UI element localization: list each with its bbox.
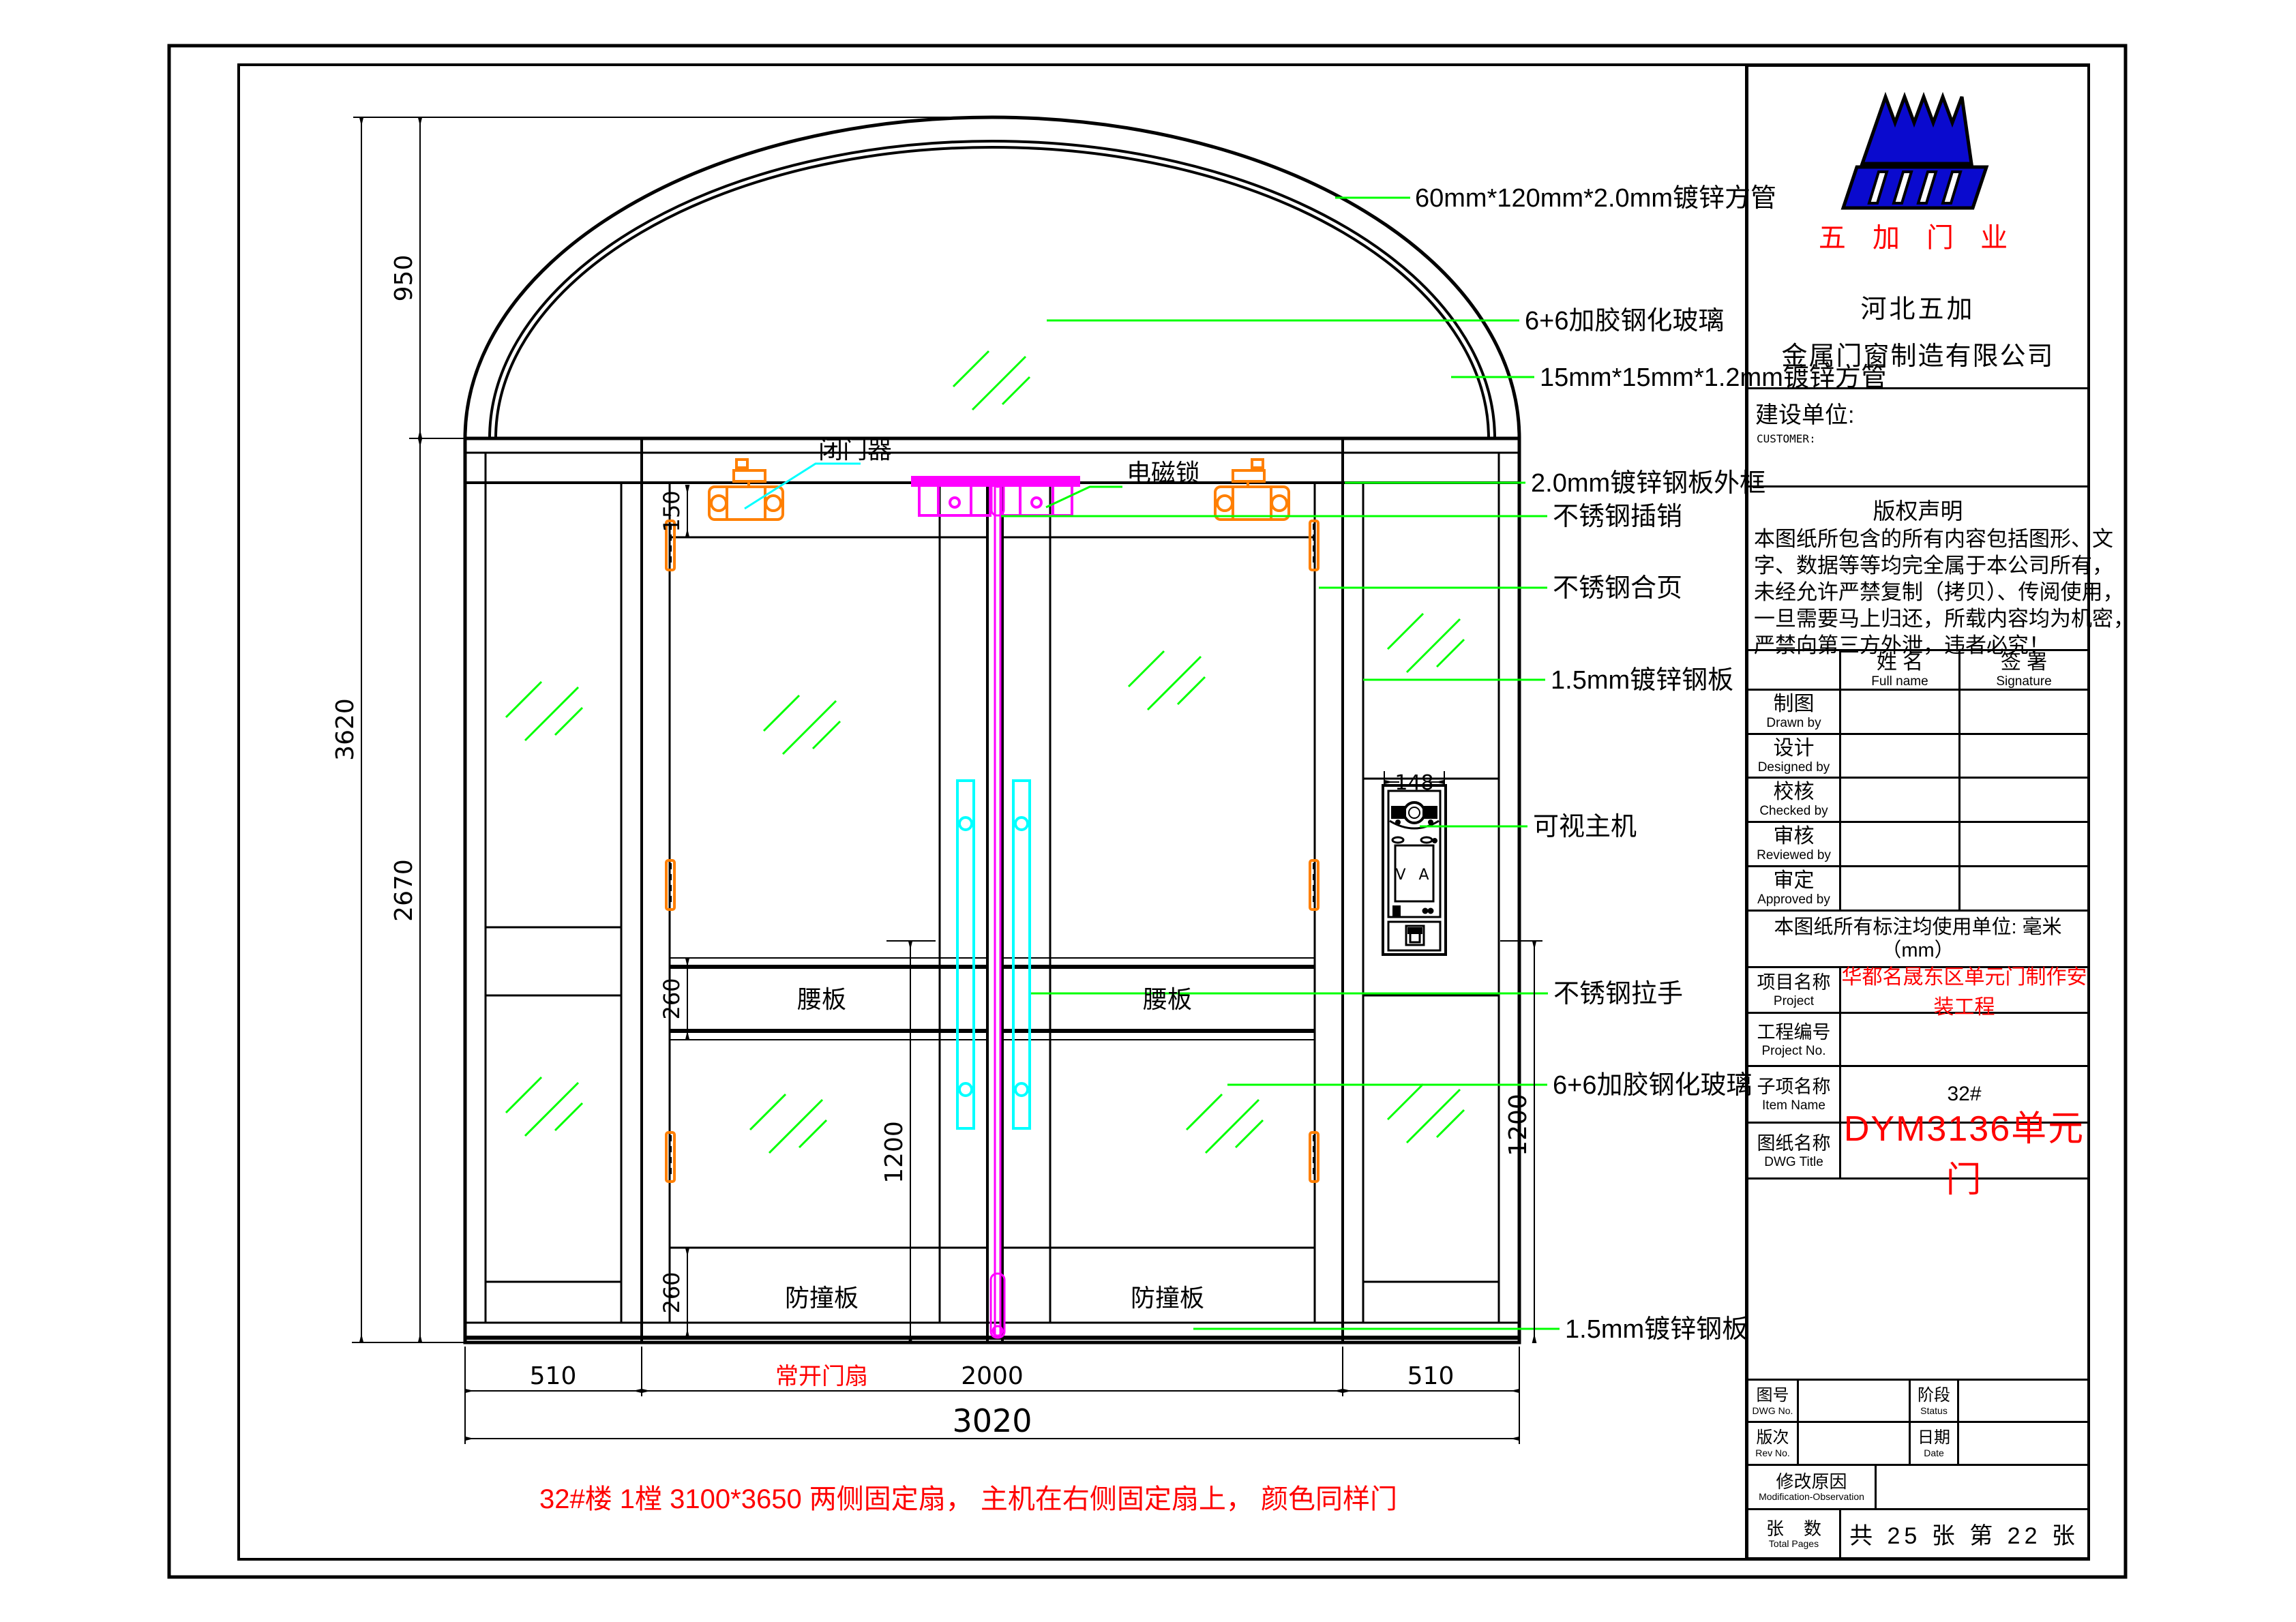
- company-logo: [1830, 82, 2007, 211]
- sign-row-label: 制图 Drawn by: [1746, 691, 1841, 735]
- intercom-screen-label: V A: [1395, 867, 1433, 884]
- project-en: Project: [1748, 994, 1839, 1009]
- callout-label: 不锈钢拉手: [1553, 980, 1683, 1008]
- sign-row-name: [1841, 823, 1960, 867]
- row-cn: 审核: [1748, 825, 1839, 848]
- sign-row-signature: [1960, 779, 2089, 823]
- sig-header-en: Signature: [1960, 674, 2087, 689]
- hinges: [666, 521, 1318, 1182]
- project-no-en: Project No.: [1748, 1044, 1839, 1059]
- callout-label: 60mm*120mm*2.0mm镀锌方管: [1415, 184, 1776, 213]
- waist-panel-label: 腰板: [797, 985, 846, 1013]
- dwg-no-en: DWG No.: [1748, 1405, 1797, 1416]
- project-no-label-cell: 工程编号 Project No.: [1746, 1014, 1841, 1067]
- pull-handles: [957, 781, 1030, 1128]
- sign-row-label: 审核 Reviewed by: [1746, 823, 1841, 867]
- callout-labels: 60mm*120mm*2.0mm镀锌方管 6+6加胶钢化玻璃 15mm*15mm…: [818, 184, 1887, 1344]
- project-cn: 项目名称: [1748, 971, 1839, 994]
- sig-header-cn: 签 署: [1960, 651, 2087, 674]
- date-cn: 日期: [1911, 1428, 1957, 1447]
- modification-value-cell: [1877, 1466, 2089, 1510]
- copyright-cell: 版权声明 本图纸所包含的所有内容包括图形、文 字、数据等等均完全属于本公司所有，…: [1746, 487, 2089, 651]
- status-label-cell: 阶段 Status: [1911, 1381, 1959, 1423]
- row-en: Designed by: [1748, 760, 1839, 775]
- door-leaf-note: 常开门扇: [775, 1364, 868, 1390]
- spacer-cell: [1746, 1180, 2089, 1381]
- dim-1200: 1200: [1504, 1094, 1532, 1156]
- pages-cn: 张 数: [1748, 1519, 1839, 1538]
- door-closer-label: 闭门器: [818, 436, 892, 464]
- copyright-line: 未经允许严禁复制（拷贝）、传阅使用，: [1748, 579, 2087, 605]
- row-en: Approved by: [1748, 892, 1839, 907]
- sign-row-label: 校核 Checked by: [1746, 779, 1841, 823]
- modification-cn: 修改原因: [1748, 1472, 1875, 1491]
- maglock-label: 电磁锁: [1127, 459, 1200, 487]
- rev-value-cell: [1799, 1423, 1911, 1466]
- date-en: Date: [1911, 1447, 1957, 1458]
- company-name-line2: 金属门窗制造有限公司: [1781, 335, 2054, 372]
- drawing-sheet: V A 60mm*120mm*2.0mm镀锌方管 6+6加胶钢化玻璃 15mm*…: [0, 0, 2296, 1622]
- sign-row-label: 设计 Designed by: [1746, 735, 1841, 779]
- status-en: Status: [1911, 1405, 1957, 1416]
- copyright-title: 版权声明: [1748, 493, 2087, 526]
- pages-value: 共 25 张 第 22 张: [1841, 1517, 2087, 1550]
- row-en: Drawn by: [1748, 716, 1839, 731]
- sign-row-name: [1841, 867, 1960, 912]
- door-closer-right: [1215, 460, 1289, 520]
- sign-header-empty: [1746, 651, 1841, 691]
- sign-row-name: [1841, 691, 1960, 735]
- dim-3020: 3020: [952, 1402, 1032, 1439]
- dwg-title-value-cell: DYM3136单元门: [1841, 1124, 2089, 1180]
- status-value-cell: [1959, 1381, 2089, 1423]
- bump-panel-label: 防撞板: [785, 1284, 859, 1312]
- dwg-no-label-cell: 图号 DWG No.: [1746, 1381, 1799, 1423]
- maglock-leader: [1046, 487, 1122, 507]
- video-intercom-unit: V A: [1383, 785, 1446, 955]
- bottom-note: 32#楼 1樘 3100*3650 两侧固定扇， 主机在右侧固定扇上， 颜色同样…: [539, 1484, 1397, 1514]
- modification-en: Modification-Observation: [1748, 1491, 1875, 1502]
- door-closer-left: [709, 460, 783, 520]
- callout-label: 不锈钢合页: [1553, 574, 1682, 603]
- row-cn: 审定: [1748, 869, 1839, 892]
- date-value-cell: [1959, 1423, 2089, 1466]
- name-header-cn: 姓 名: [1841, 651, 1958, 674]
- dim-950: 950: [390, 255, 418, 302]
- sign-row-signature: [1960, 823, 2089, 867]
- customer-label: 建设单位:: [1748, 389, 2087, 430]
- customer-cell: 建设单位: CUSTOMER:: [1746, 389, 2089, 487]
- status-cn: 阶段: [1911, 1386, 1957, 1405]
- copyright-line: 一旦需要马上归还，所载内容均为机密，: [1748, 605, 2087, 632]
- waist-panel-label: 腰板: [1143, 985, 1192, 1013]
- name-header-en: Full name: [1841, 674, 1958, 689]
- dim-148: 148: [1395, 771, 1433, 795]
- title-block: 五 加 门 业 河北五加 金属门窗制造有限公司 建设单位: CUSTOMER: …: [1746, 65, 2089, 1559]
- dim-510: 510: [1407, 1362, 1455, 1390]
- copyright-line: 本图纸所包含的所有内容包括图形、文: [1748, 526, 2087, 552]
- sign-header-signature: 签 署 Signature: [1960, 651, 2089, 691]
- modification-label-cell: 修改原因 Modification-Observation: [1746, 1466, 1877, 1510]
- company-name-line1: 河北五加: [1860, 288, 1975, 325]
- customer-sublabel: CUSTOMER:: [1748, 430, 2087, 445]
- item-label-cell: 子项名称 Item Name: [1746, 1067, 1841, 1124]
- date-label-cell: 日期 Date: [1911, 1423, 1959, 1466]
- sign-row-name: [1841, 779, 1960, 823]
- dim-260: 260: [659, 1272, 685, 1313]
- pages-label-cell: 张 数 Total Pages: [1746, 1510, 1841, 1559]
- dwg-title-en: DWG Title: [1748, 1155, 1839, 1170]
- dim-2670: 2670: [390, 859, 418, 922]
- callout-label: 2.0mm镀锌钢板外框: [1531, 469, 1765, 498]
- item-cn: 子项名称: [1748, 1075, 1839, 1098]
- dim-2000: 2000: [961, 1362, 1024, 1390]
- rev-cn: 版次: [1748, 1428, 1797, 1447]
- sign-row-signature: [1960, 691, 2089, 735]
- units-note: 本图纸所有标注均使用单位: 毫米（mm）: [1748, 916, 2087, 962]
- callout-label: 1.5mm镀锌钢板: [1551, 666, 1733, 695]
- bump-panel-label: 防撞板: [1131, 1284, 1204, 1312]
- project-name-value: 华都名晟东区单元门制作安装工程: [1841, 960, 2087, 1020]
- dim-260: 260: [659, 978, 685, 1019]
- callout-leaders: [1001, 198, 1560, 1329]
- sign-header-name: 姓 名 Full name: [1841, 651, 1960, 691]
- project-label-cell: 项目名称 Project: [1746, 968, 1841, 1014]
- pages-value-cell: 共 25 张 第 22 张: [1841, 1510, 2089, 1559]
- row-cn: 设计: [1748, 737, 1839, 760]
- dwg-title-label-cell: 图纸名称 DWG Title: [1746, 1124, 1841, 1180]
- callout-label: 6+6加胶钢化玻璃: [1553, 1071, 1752, 1100]
- pages-en: Total Pages: [1748, 1538, 1839, 1549]
- rev-label-cell: 版次 Rev No.: [1746, 1423, 1799, 1466]
- project-no-value-cell: [1841, 1014, 2089, 1067]
- item-en: Item Name: [1748, 1098, 1839, 1113]
- callout-label: 6+6加胶钢化玻璃: [1525, 307, 1724, 335]
- sign-row-signature: [1960, 735, 2089, 779]
- dim-510: 510: [530, 1362, 577, 1390]
- sign-row-label: 审定 Approved by: [1746, 867, 1841, 912]
- dimension-labels: 950 3620 2670 150 260 260 1200 1200 148 …: [331, 255, 1532, 1439]
- callout-label: 可视主机: [1533, 813, 1637, 841]
- row-en: Checked by: [1748, 804, 1839, 819]
- closers-and-hinges: [666, 460, 1318, 1182]
- row-cn: 校核: [1748, 781, 1839, 804]
- callout-label: 不锈钢插销: [1553, 502, 1682, 531]
- dwg-no-value-cell: [1799, 1381, 1911, 1423]
- copyright-line: 字、数据等等均完全属于本公司所有，: [1748, 552, 2087, 579]
- maglock-and-astragal: [912, 477, 1079, 1338]
- dim-1200: 1200: [880, 1121, 908, 1184]
- sign-row-name: [1841, 735, 1960, 779]
- door-frame: [465, 438, 1519, 1342]
- rev-en: Rev No.: [1748, 1447, 1797, 1458]
- dim-3620: 3620: [331, 698, 359, 761]
- callout-label: 1.5mm镀锌钢板: [1565, 1315, 1748, 1344]
- row-cn: 制图: [1748, 693, 1839, 716]
- sign-row-signature: [1960, 867, 2089, 912]
- dim-150: 150: [659, 490, 685, 532]
- logo-caption: 五 加 门 业: [1819, 215, 2017, 255]
- dwg-no-cn: 图号: [1748, 1386, 1797, 1405]
- row-en: Reviewed by: [1748, 848, 1839, 863]
- project-value-cell: 华都名晟东区单元门制作安装工程: [1841, 968, 2089, 1014]
- dwg-title-cn: 图纸名称: [1748, 1132, 1839, 1155]
- company-cell: 五 加 门 业 河北五加 金属门窗制造有限公司: [1746, 65, 2089, 389]
- project-no-cn: 工程编号: [1748, 1021, 1839, 1044]
